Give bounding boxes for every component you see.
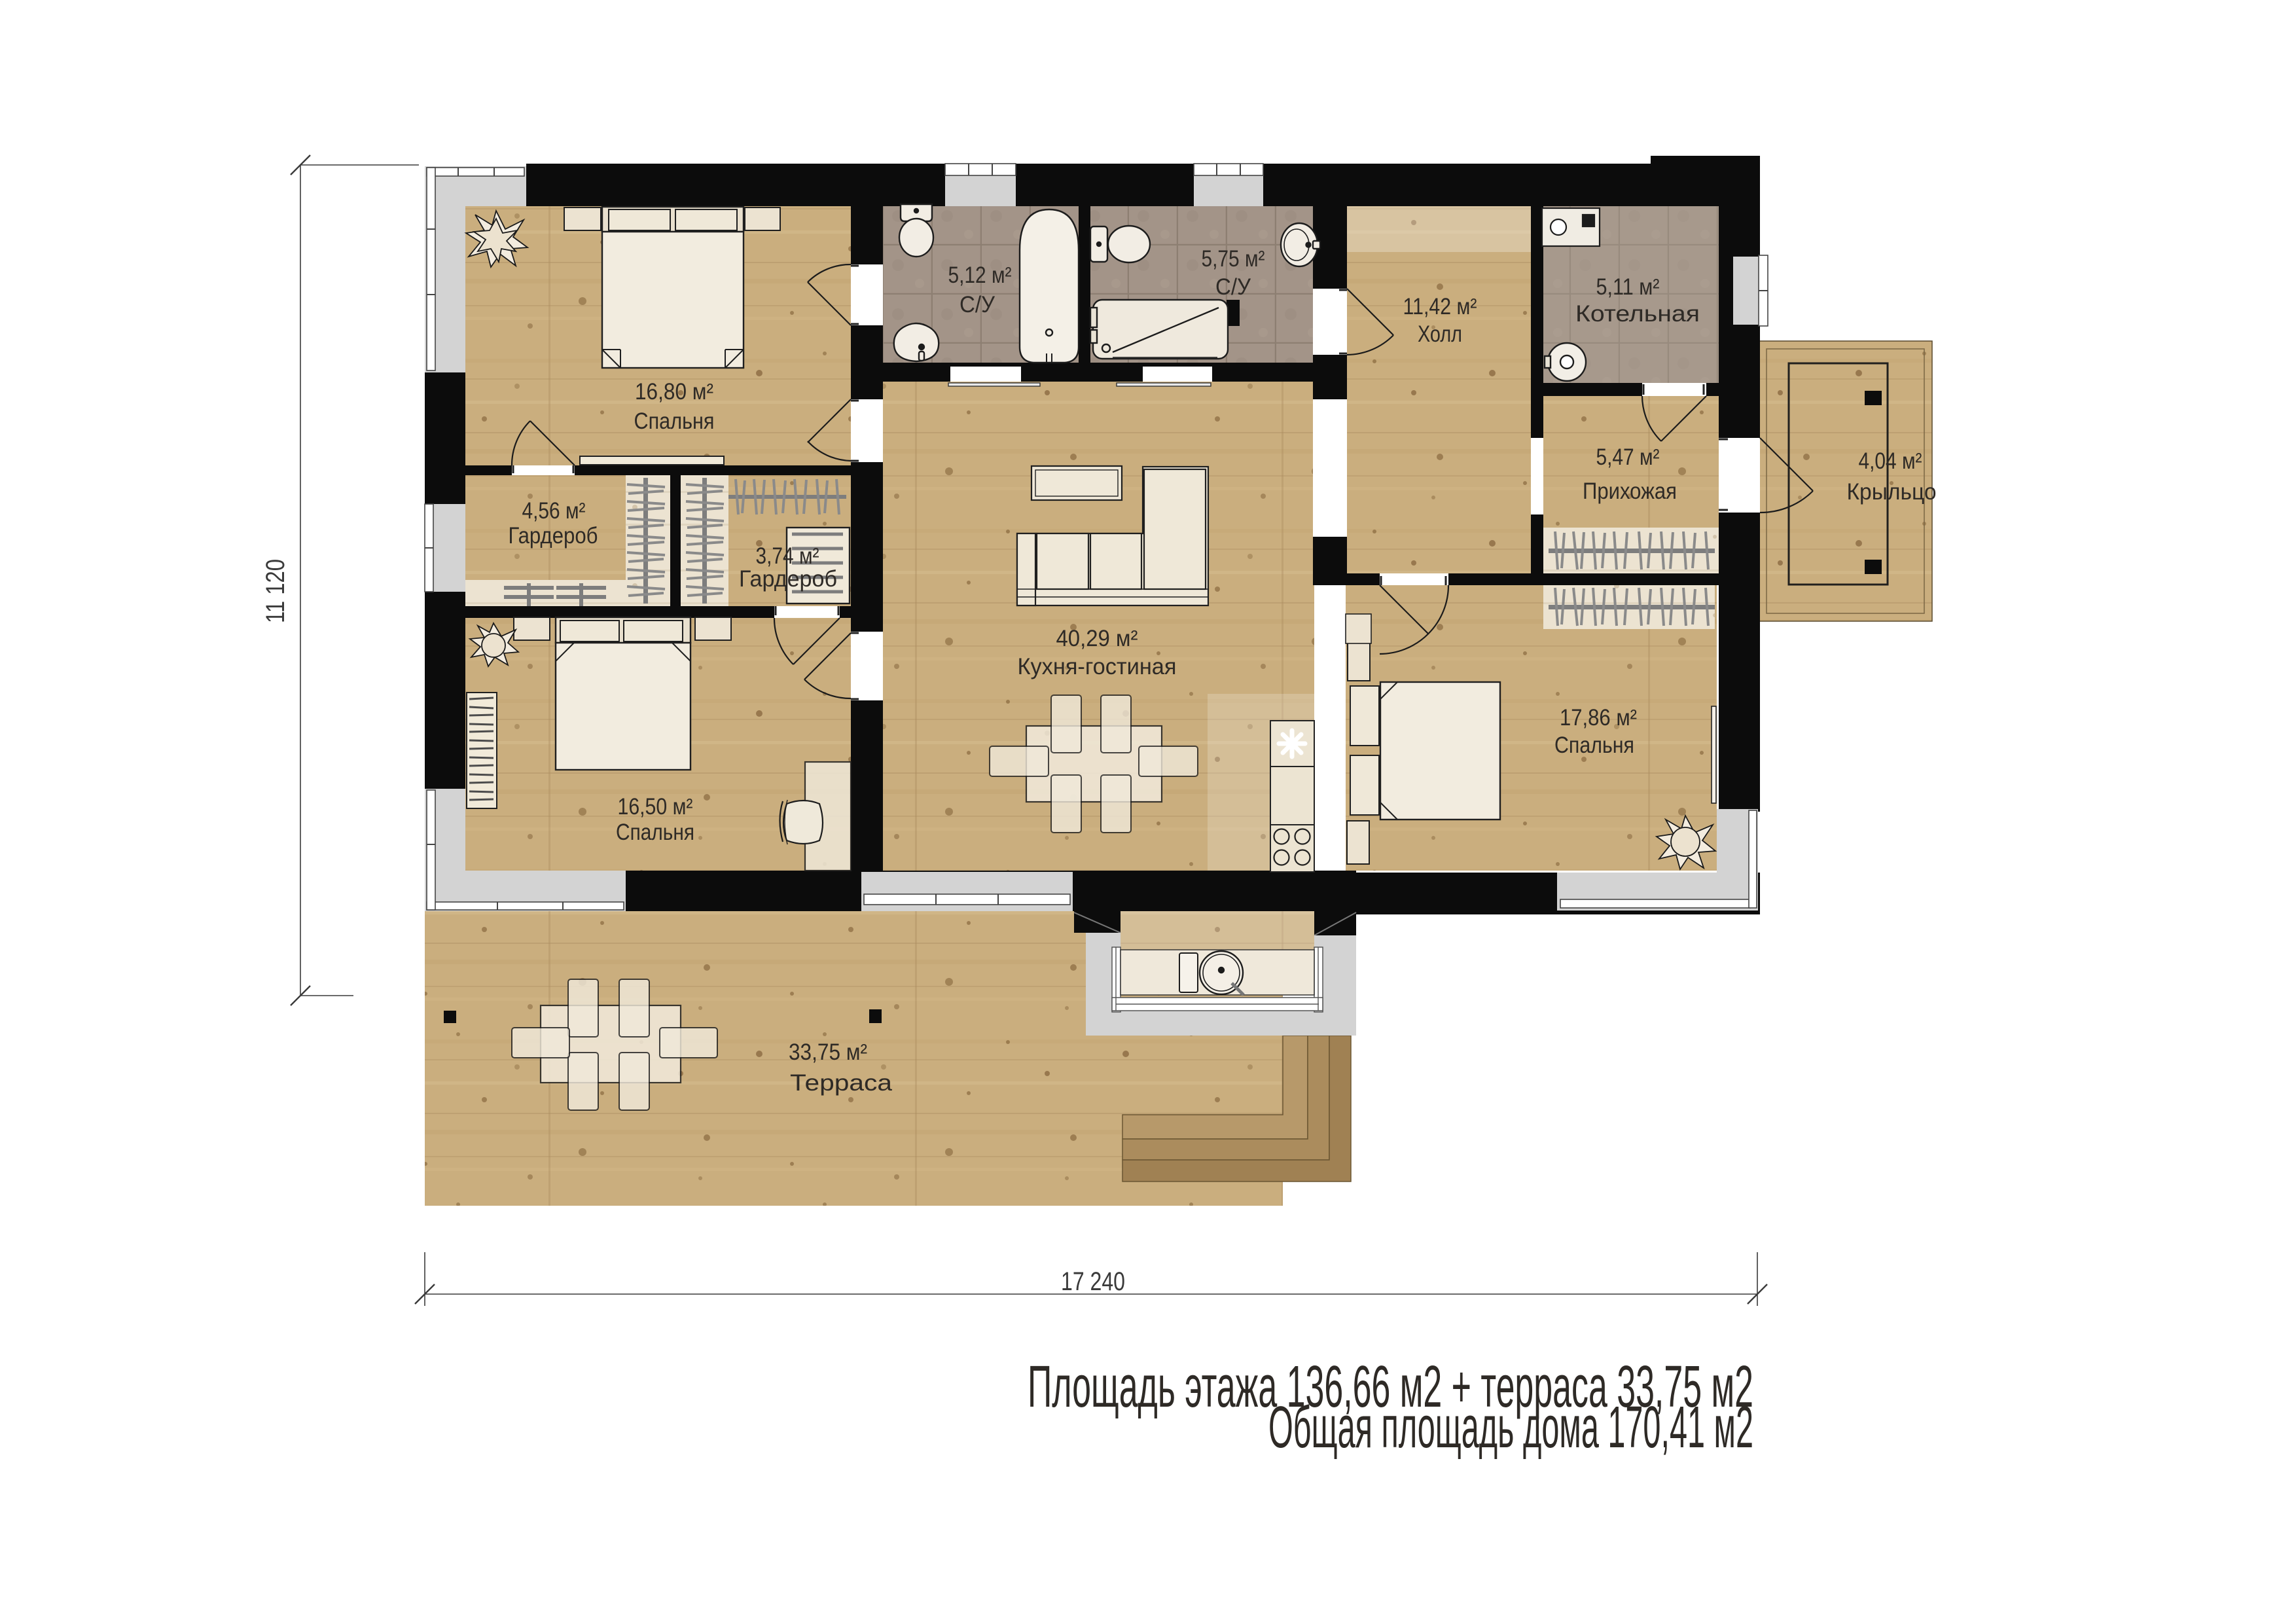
svg-text:11 120: 11 120 bbox=[261, 559, 290, 623]
svg-text:5,11 м²: 5,11 м² bbox=[1596, 274, 1660, 300]
svg-text:4,56 м²: 4,56 м² bbox=[522, 498, 586, 524]
svg-text:33,75 м²: 33,75 м² bbox=[789, 1039, 867, 1065]
svg-text:16,80 м²: 16,80 м² bbox=[635, 379, 713, 405]
svg-text:С/У: С/У bbox=[960, 292, 996, 317]
svg-text:3,74 м²: 3,74 м² bbox=[756, 543, 819, 569]
svg-text:Гардероб: Гардероб bbox=[509, 523, 598, 549]
svg-text:40,29 м²: 40,29 м² bbox=[1056, 626, 1138, 651]
svg-text:Холл: Холл bbox=[1418, 321, 1462, 347]
svg-text:Крыльцо: Крыльцо bbox=[1847, 479, 1937, 505]
svg-text:5,12 м²: 5,12 м² bbox=[948, 262, 1012, 288]
svg-text:16,50 м²: 16,50 м² bbox=[618, 794, 693, 820]
svg-text:С/У: С/У bbox=[1215, 274, 1251, 300]
svg-text:Прихожая: Прихожая bbox=[1583, 478, 1677, 504]
svg-text:11,42 м²: 11,42 м² bbox=[1403, 294, 1477, 319]
svg-text:Гардероб: Гардероб bbox=[739, 566, 837, 592]
svg-text:5,75 м²: 5,75 м² bbox=[1202, 246, 1265, 272]
svg-text:Спальня: Спальня bbox=[634, 408, 715, 434]
svg-text:5,47 м²: 5,47 м² bbox=[1596, 444, 1660, 470]
svg-text:Терраса: Терраса bbox=[790, 1070, 893, 1096]
svg-text:17,86 м²: 17,86 м² bbox=[1560, 705, 1637, 731]
svg-text:Кухня-гостиная: Кухня-гостиная bbox=[1018, 654, 1177, 679]
svg-text:17 240: 17 240 bbox=[1061, 1267, 1125, 1296]
svg-text:4,04 м²: 4,04 м² bbox=[1859, 448, 1922, 474]
svg-text:Спальня: Спальня bbox=[616, 820, 694, 845]
svg-text:Котельная: Котельная bbox=[1575, 301, 1700, 327]
svg-text:Спальня: Спальня bbox=[1554, 732, 1634, 758]
svg-text:Общая площадь дома 170,41 м2: Общая площадь дома 170,41 м2 bbox=[1268, 1395, 1753, 1460]
